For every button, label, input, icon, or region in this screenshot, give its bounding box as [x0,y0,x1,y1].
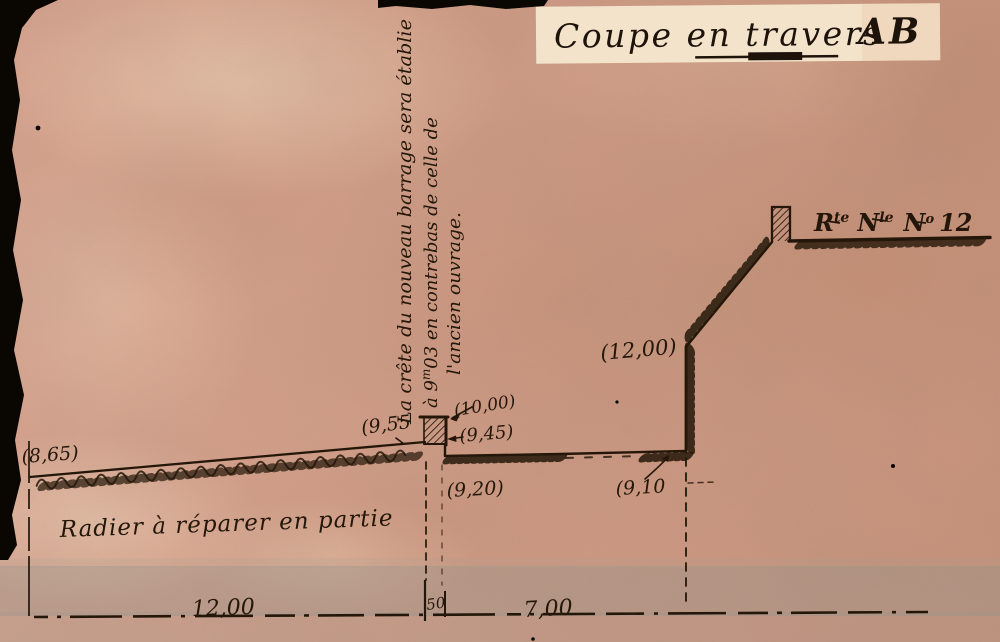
paper-crease-band [0,566,1000,616]
dimension-label-7-00: 7,00 [523,595,573,623]
parapet-post [772,207,790,242]
elevation-label-9-10: (9,10 [615,475,666,500]
title-section-id: AB [855,10,923,53]
scanned-drawing: (8,65) (9,55 (10,00) (9,45) (9,20) (9,10… [0,0,1000,642]
dimension-label-12-00: 12,00 [191,595,255,622]
floor-hatching-left [448,457,566,459]
road-hatching [800,242,986,245]
new-crest-block [420,417,448,445]
ink-speck [36,126,41,131]
ink-speck [891,464,895,468]
floor-leader-dashed [688,482,716,483]
elevation-label-9-20: (9,20) [446,477,504,502]
drawing-canvas: (8,65) (9,55 (10,00) (9,45) (9,20) (9,10… [0,0,1000,642]
note-line-3: l'ancien ouvrage. [444,212,465,375]
note-line-1: La crête du nouveau barrage sera établie [394,19,416,425]
title-block: Coupe en travers AB [536,3,940,64]
ink-speck [531,637,535,641]
title-text: Coupe en travers [554,14,883,56]
ink-speck [615,400,618,403]
paper-background [0,0,1000,642]
note-line-2: à 9m03 en contrebas de celle de [419,117,442,408]
dimension-label-50: 50 [425,593,447,614]
